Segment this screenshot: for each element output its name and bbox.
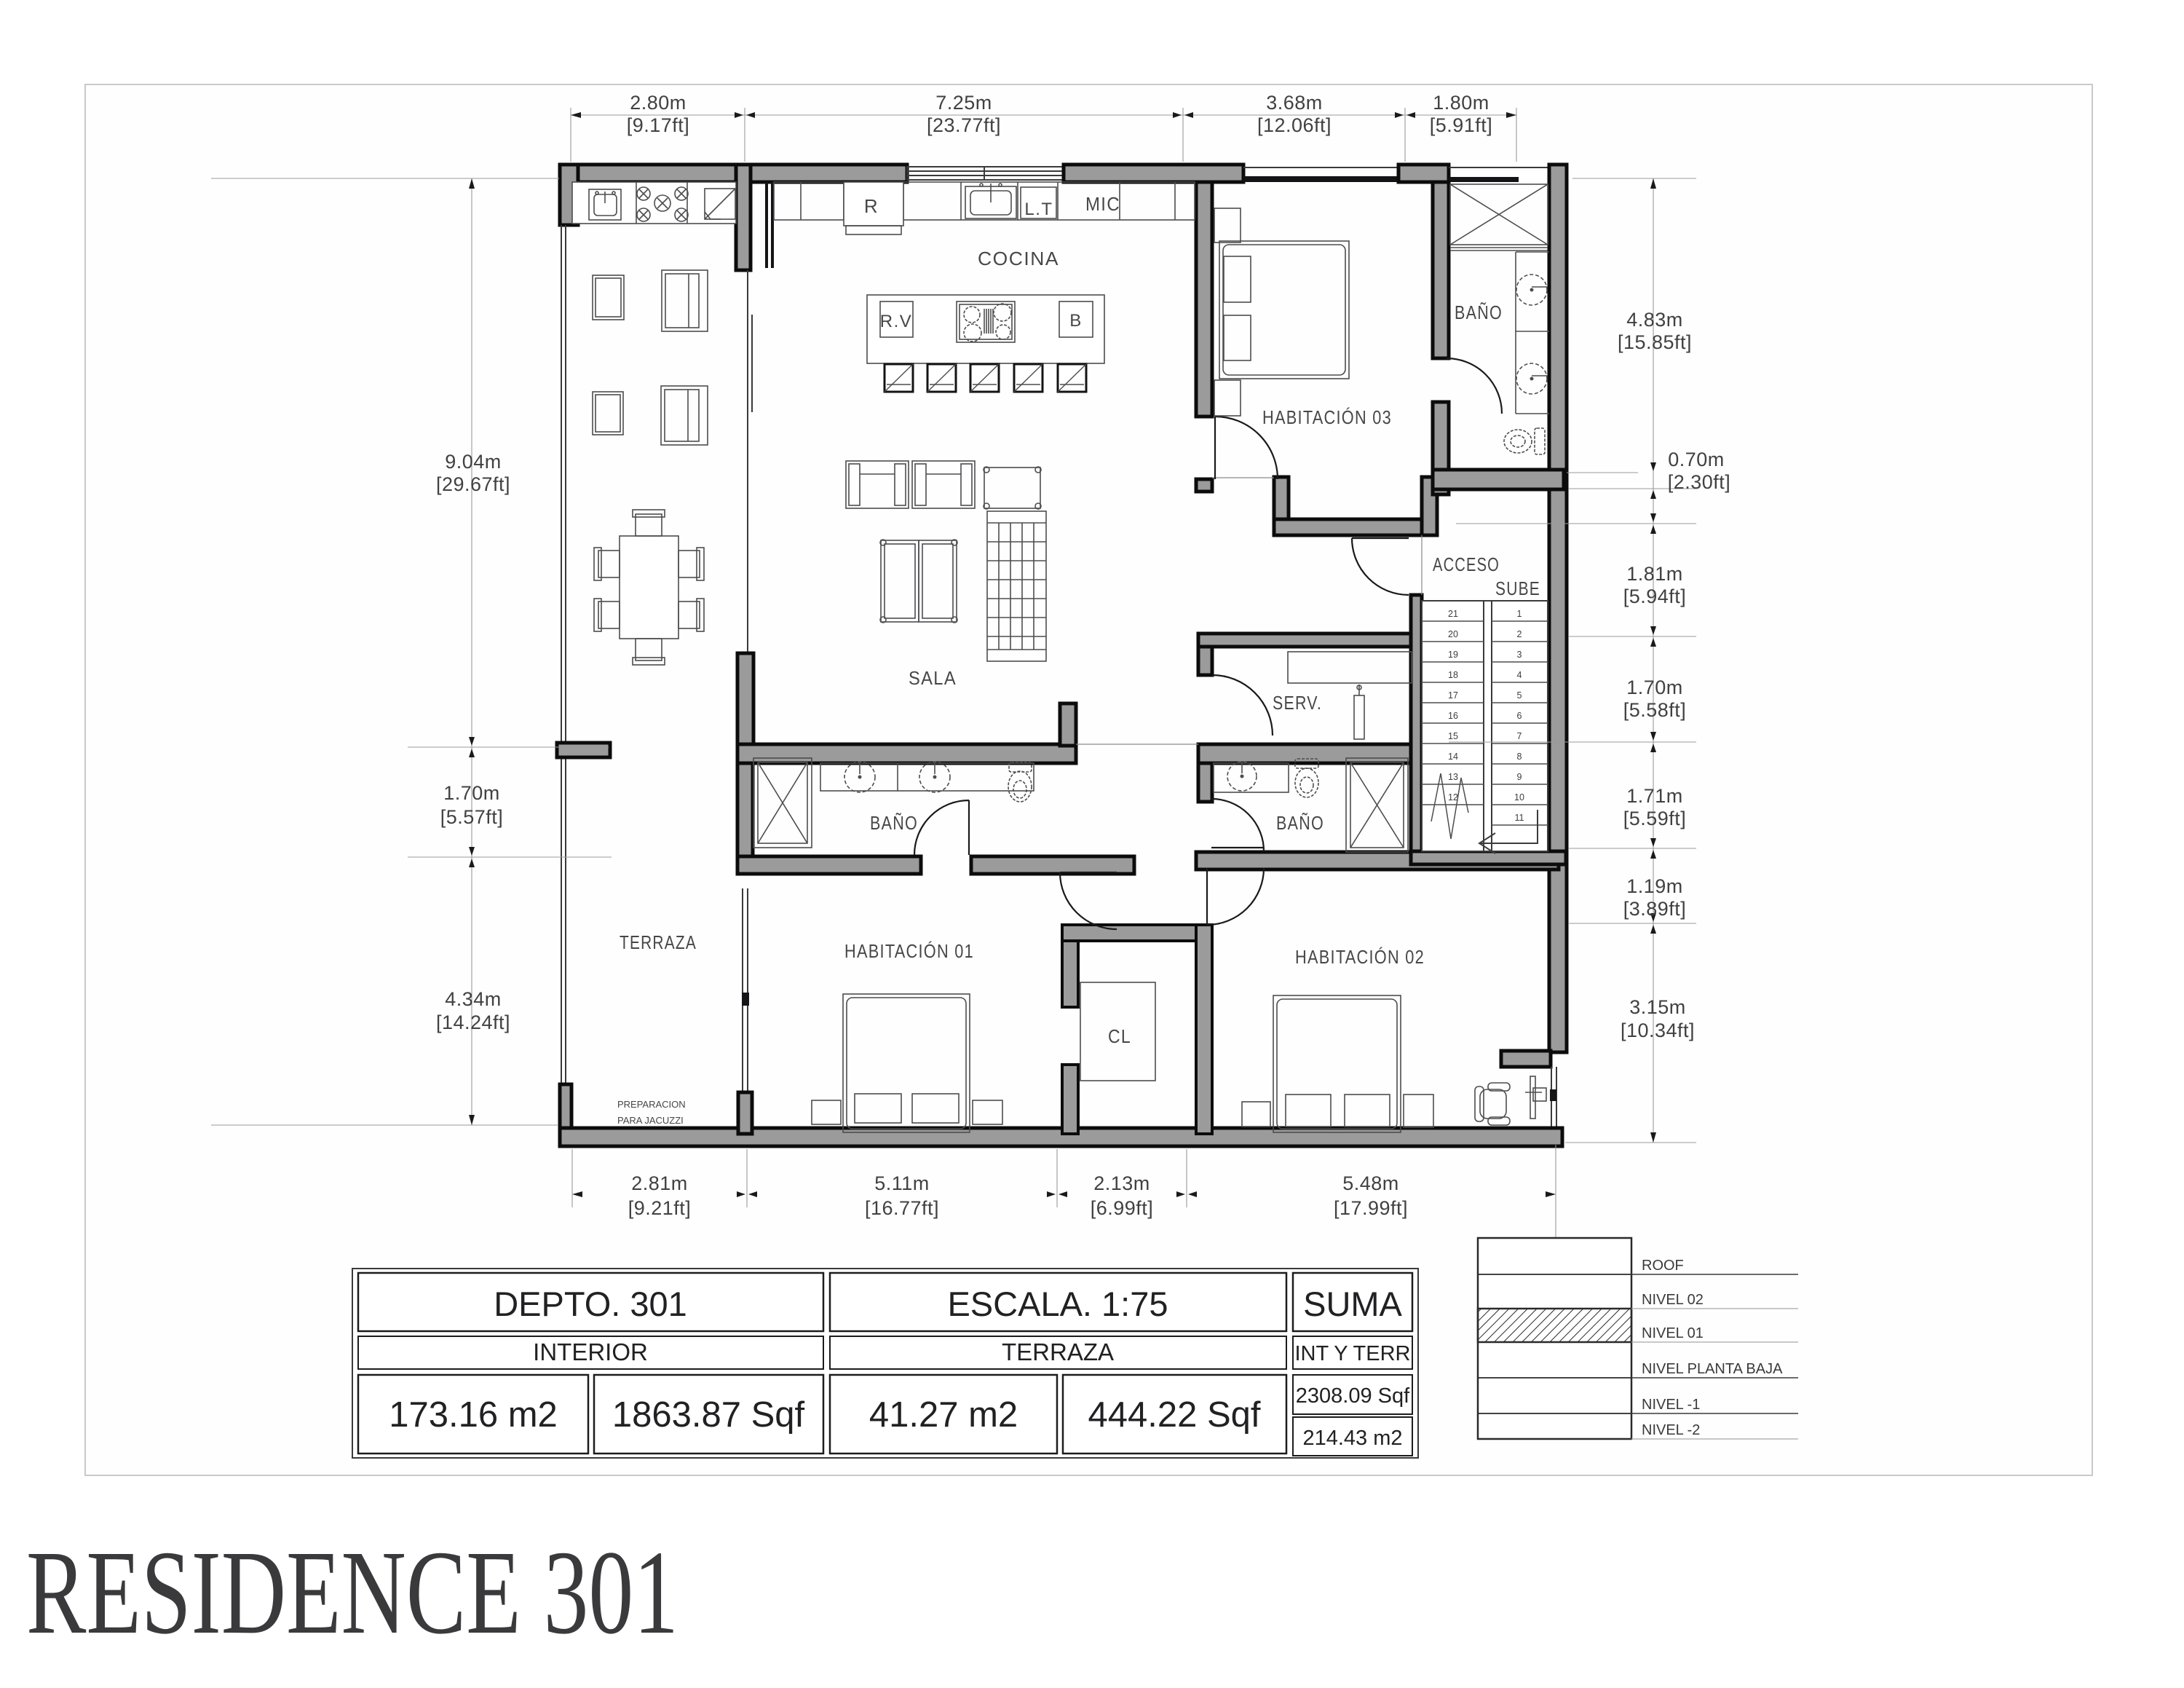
svg-text:2: 2	[1517, 629, 1522, 639]
svg-text:[9.17ft]: [9.17ft]	[627, 114, 690, 136]
svg-text:[10.34ft]: [10.34ft]	[1621, 1019, 1695, 1041]
svg-text:214.43 m2: 214.43 m2	[1302, 1427, 1402, 1450]
svg-text:5.11m: 5.11m	[874, 1172, 930, 1194]
svg-text:2.81m: 2.81m	[631, 1172, 688, 1194]
svg-text:12: 12	[1448, 792, 1458, 802]
svg-text:4.34m: 4.34m	[445, 988, 502, 1010]
svg-text:20: 20	[1448, 629, 1458, 639]
svg-text:444.22 Sqf: 444.22 Sqf	[1088, 1395, 1260, 1435]
svg-text:5.48m: 5.48m	[1342, 1172, 1399, 1194]
svg-text:0.70m: 0.70m	[1668, 449, 1725, 470]
svg-text:[5.94ft]: [5.94ft]	[1623, 585, 1687, 607]
svg-text:[16.77ft]: [16.77ft]	[865, 1197, 939, 1219]
svg-text:SUBE: SUBE	[1495, 577, 1540, 599]
svg-text:16: 16	[1448, 711, 1458, 721]
svg-text:1.70m: 1.70m	[1626, 677, 1683, 698]
svg-text:COCINA: COCINA	[978, 248, 1059, 269]
svg-text:1.71m: 1.71m	[1626, 785, 1683, 807]
svg-text:15: 15	[1448, 731, 1458, 741]
svg-text:6: 6	[1517, 711, 1522, 721]
svg-text:1.80m: 1.80m	[1433, 92, 1489, 114]
svg-text:21: 21	[1448, 609, 1458, 619]
svg-text:NIVEL -2: NIVEL -2	[1642, 1422, 1700, 1438]
svg-text:4.83m: 4.83m	[1626, 309, 1683, 331]
svg-text:PREPARACION: PREPARACION	[617, 1099, 686, 1110]
svg-text:1: 1	[1517, 609, 1522, 619]
svg-text:1.70m: 1.70m	[443, 782, 500, 804]
svg-text:[5.57ft]: [5.57ft]	[440, 806, 504, 828]
svg-text:[23.77ft]: [23.77ft]	[927, 114, 1001, 136]
svg-text:173.16 m2: 173.16 m2	[389, 1395, 558, 1435]
svg-text:[29.67ft]: [29.67ft]	[436, 473, 510, 495]
svg-text:ESCALA. 1:75: ESCALA. 1:75	[947, 1285, 1168, 1323]
svg-text:BAÑO: BAÑO	[1276, 812, 1324, 834]
svg-text:[15.85ft]: [15.85ft]	[1618, 331, 1692, 353]
svg-text:2308.09 Sqf: 2308.09 Sqf	[1296, 1384, 1410, 1408]
svg-text:18: 18	[1448, 670, 1458, 680]
svg-text:HABITACIÓN 02: HABITACIÓN 02	[1295, 946, 1425, 968]
svg-text:1.81m: 1.81m	[1626, 563, 1683, 585]
svg-text:[2.30ft]: [2.30ft]	[1668, 471, 1731, 493]
svg-text:NIVEL -1: NIVEL -1	[1642, 1397, 1700, 1413]
svg-text:7.25m: 7.25m	[935, 92, 992, 114]
svg-text:1863.87 Sqf: 1863.87 Sqf	[612, 1395, 805, 1435]
svg-text:[17.99ft]: [17.99ft]	[1334, 1197, 1408, 1219]
svg-text:[12.06ft]: [12.06ft]	[1257, 114, 1332, 136]
svg-text:8: 8	[1517, 752, 1522, 762]
svg-text:ACCESO: ACCESO	[1433, 553, 1500, 575]
svg-text:[5.58ft]: [5.58ft]	[1623, 699, 1687, 721]
svg-text:10: 10	[1514, 792, 1524, 802]
svg-text:41.27 m2: 41.27 m2	[869, 1395, 1018, 1435]
svg-text:13: 13	[1448, 772, 1458, 782]
svg-text:[5.91ft]: [5.91ft]	[1430, 114, 1493, 136]
svg-text:INTERIOR: INTERIOR	[533, 1338, 648, 1365]
svg-text:17: 17	[1448, 690, 1458, 701]
svg-text:3.68m: 3.68m	[1266, 92, 1323, 114]
svg-text:[9.21ft]: [9.21ft]	[628, 1197, 692, 1219]
svg-text:HABITACIÓN 01: HABITACIÓN 01	[844, 940, 974, 962]
svg-text:[14.24ft]: [14.24ft]	[436, 1011, 510, 1033]
svg-text:TERRAZA: TERRAZA	[1002, 1338, 1114, 1365]
svg-text:11: 11	[1515, 813, 1524, 823]
svg-text:3: 3	[1517, 650, 1522, 660]
svg-text:PARA JACUZZI: PARA JACUZZI	[617, 1115, 684, 1126]
svg-text:NIVEL 01: NIVEL 01	[1642, 1325, 1704, 1341]
svg-text:R.V: R.V	[880, 312, 913, 331]
svg-text:NIVEL PLANTA BAJA: NIVEL PLANTA BAJA	[1642, 1361, 1783, 1377]
svg-text:ROOF: ROOF	[1642, 1258, 1684, 1274]
svg-text:[3.89ft]: [3.89ft]	[1623, 898, 1687, 920]
svg-text:HABITACIÓN 03: HABITACIÓN 03	[1262, 406, 1392, 428]
svg-text:NIVEL 02: NIVEL 02	[1642, 1292, 1704, 1308]
svg-text:9.04m: 9.04m	[445, 451, 502, 473]
svg-text:BAÑO: BAÑO	[1455, 301, 1503, 323]
svg-text:19: 19	[1448, 650, 1458, 660]
svg-text:L.T: L.T	[1024, 200, 1053, 219]
svg-text:SUMA: SUMA	[1303, 1285, 1402, 1323]
svg-text:3.15m: 3.15m	[1629, 996, 1686, 1018]
svg-text:R: R	[864, 195, 879, 217]
svg-text:DEPTO. 301: DEPTO. 301	[494, 1285, 687, 1323]
svg-text:7: 7	[1517, 731, 1522, 741]
svg-text:SALA: SALA	[909, 667, 957, 689]
svg-text:1.19m: 1.19m	[1626, 875, 1683, 897]
svg-text:4: 4	[1517, 670, 1522, 680]
svg-text:2.80m: 2.80m	[630, 92, 687, 114]
svg-text:[6.99ft]: [6.99ft]	[1091, 1197, 1154, 1219]
svg-text:B: B	[1069, 311, 1083, 331]
svg-text:MIC: MIC	[1085, 193, 1120, 215]
svg-text:5: 5	[1517, 690, 1522, 701]
svg-text:14: 14	[1448, 752, 1458, 762]
svg-text:9: 9	[1517, 772, 1522, 782]
svg-text:[5.59ft]: [5.59ft]	[1623, 808, 1687, 829]
svg-text:RESIDENCE 301: RESIDENCE 301	[26, 1526, 678, 1659]
svg-text:INT Y TERR: INT Y TERR	[1294, 1342, 1410, 1365]
svg-text:TERRAZA: TERRAZA	[620, 931, 697, 953]
svg-text:2.13m: 2.13m	[1093, 1172, 1150, 1194]
svg-text:CL: CL	[1108, 1025, 1131, 1047]
svg-text:SERV.: SERV.	[1273, 692, 1322, 714]
svg-text:BAÑO: BAÑO	[870, 812, 918, 834]
